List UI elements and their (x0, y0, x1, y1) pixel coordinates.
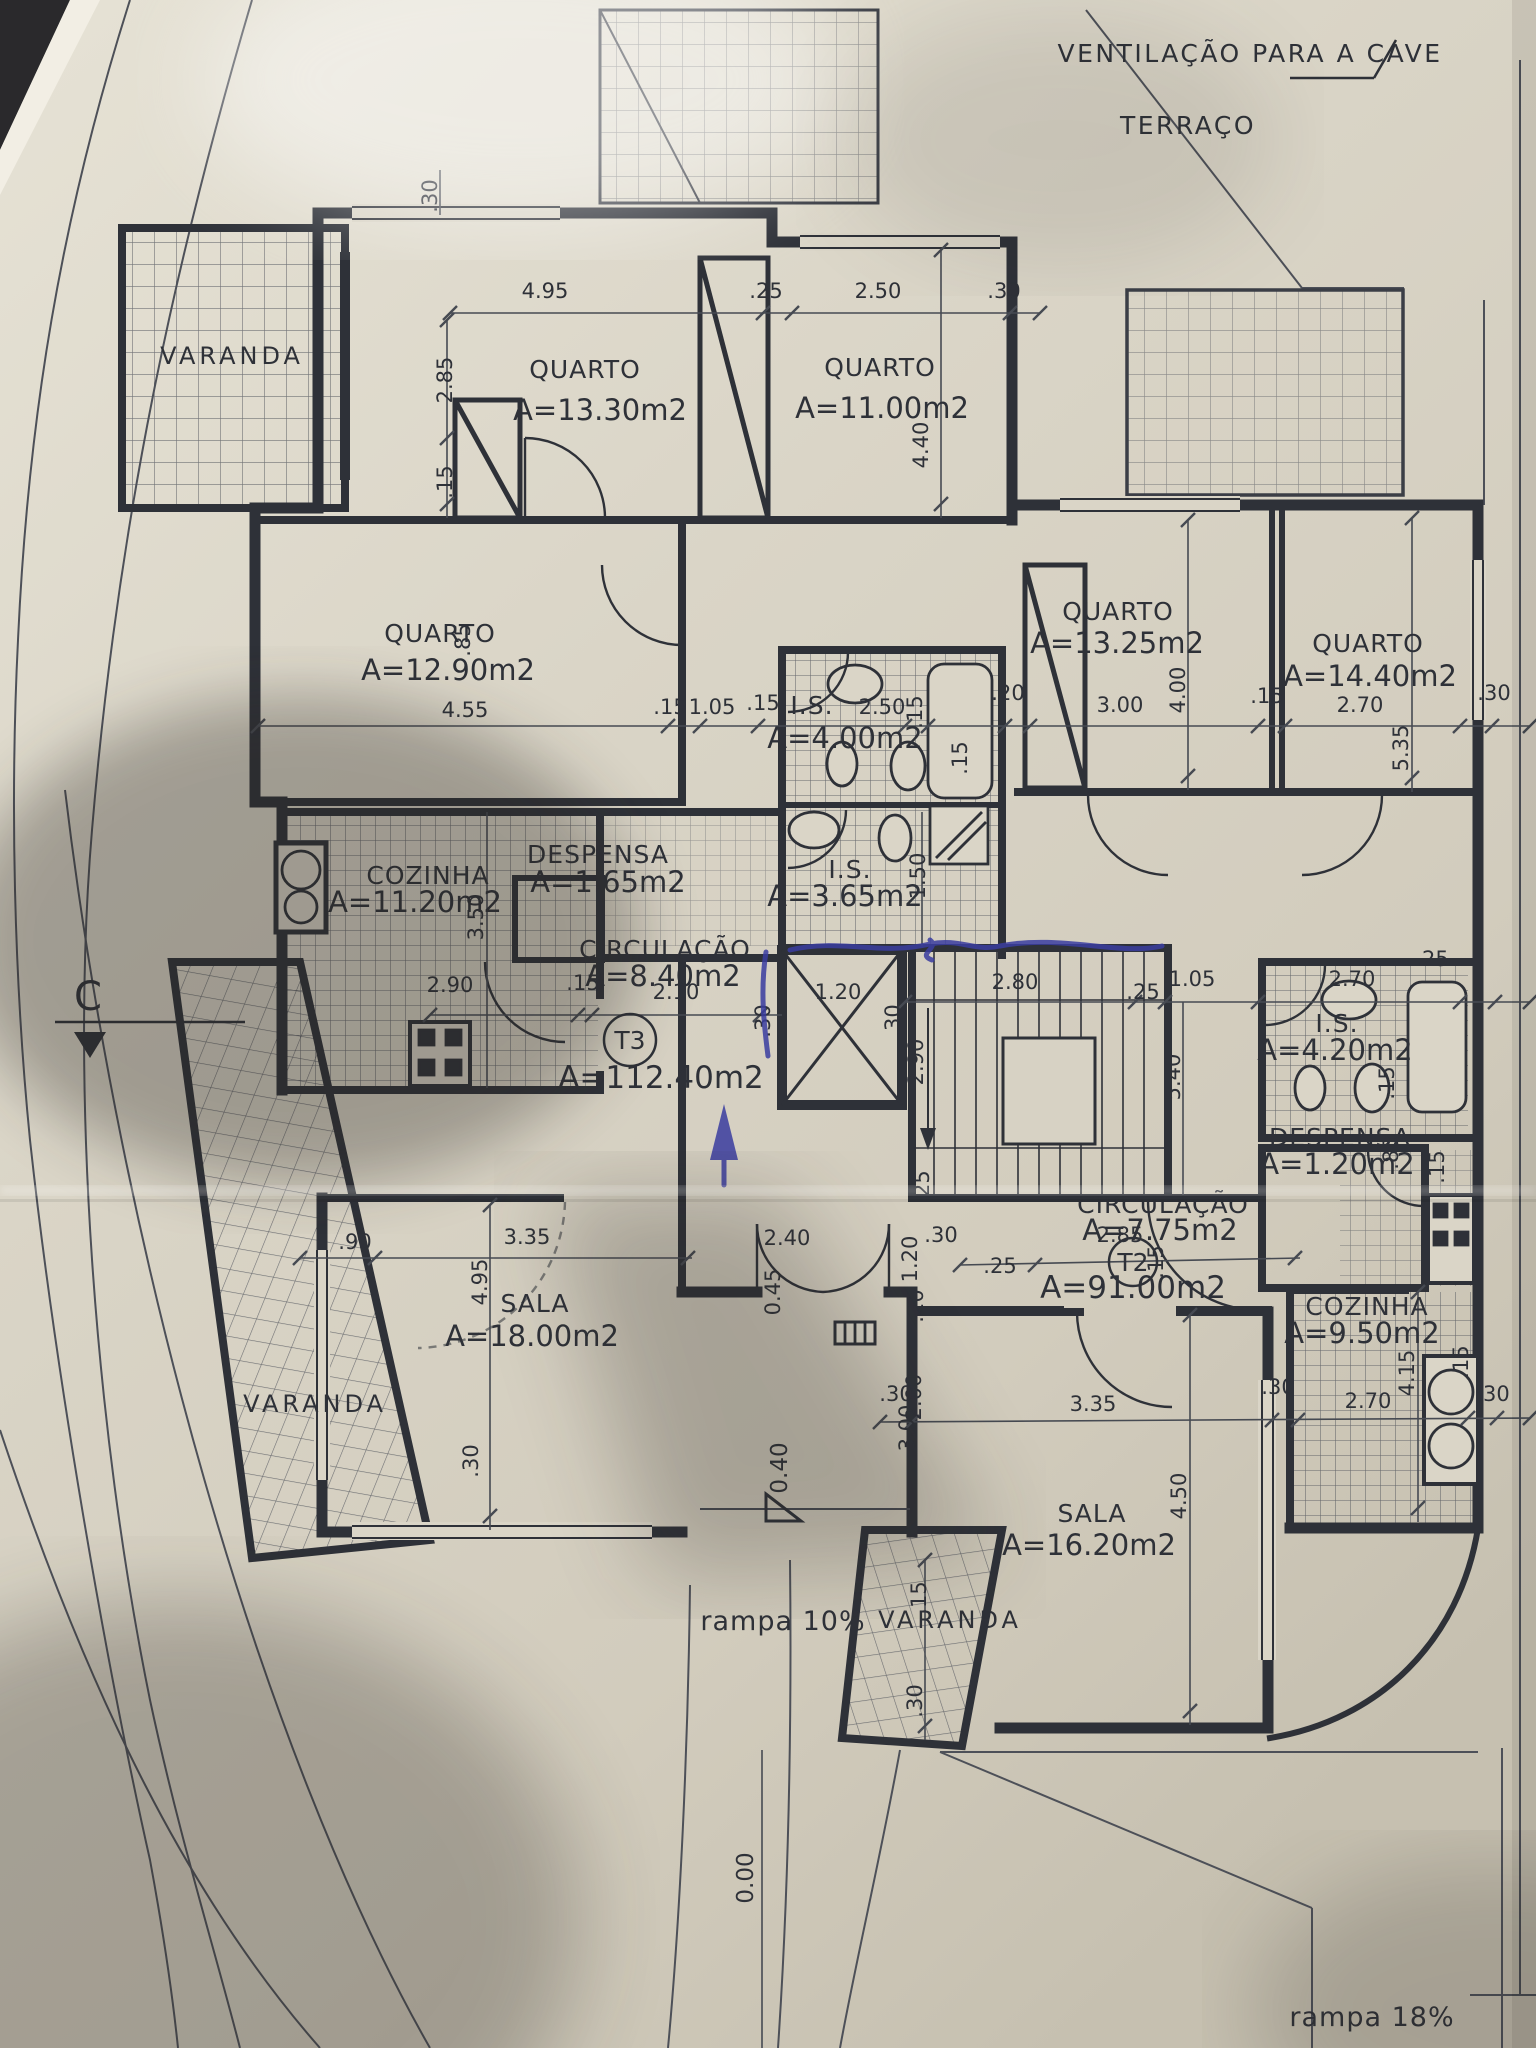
room-area: A=11.00m2 (795, 391, 969, 425)
level-ground-label: 0.00 (733, 1852, 759, 1903)
bidet-icon (1295, 1066, 1325, 1110)
dim-label: 3.35 (1070, 1392, 1117, 1416)
dim-label: .25 (1126, 980, 1159, 1004)
paper-crease-line (0, 1199, 1536, 1202)
room-area: A=14.40m2 (1283, 659, 1457, 693)
room-label: I.S. (790, 691, 833, 720)
room-area: A=3.65m2 (767, 879, 922, 913)
dim-label: .25 (1415, 947, 1448, 971)
room-label: QUARTO (824, 353, 936, 382)
sink-bowl-icon (1429, 1424, 1473, 1468)
dim-label: .30 (1261, 1375, 1294, 1399)
dim-label: .20 (904, 1289, 928, 1322)
dim-label: 1.20 (815, 980, 862, 1004)
dim-label: 4.00 (1166, 667, 1190, 714)
room-area: A=16.20m2 (1002, 1528, 1176, 1562)
room-label: QUARTO (1312, 629, 1424, 658)
dim-label: .90 (338, 1230, 371, 1254)
apartment-area-t2: A=91.00m2 (1040, 1270, 1226, 1306)
room-label-varanda-left: VARANDA (243, 1390, 387, 1418)
dim-label: 2.50 (859, 695, 906, 719)
dim-label: .30 (459, 1444, 483, 1477)
dim-label: 4.95 (522, 279, 569, 303)
dim-label: 1.05 (689, 695, 736, 719)
shadow-top-right (840, 10, 1280, 270)
room-label: SALA (1057, 1499, 1126, 1528)
dim-label: .15 (907, 1581, 931, 1614)
edge-shade (1512, 0, 1536, 2048)
dim-label: .30 (1476, 1382, 1509, 1406)
dim-label: 2.50 (855, 279, 902, 303)
dim-label: 2.70 (1329, 967, 1376, 991)
floorplan-drawing: VENTILAÇÃO PARA A CAVE TERRAÇO C VARANDA… (0, 0, 1536, 2048)
room-area: A=4.00m2 (767, 721, 922, 755)
room-label-varanda-tl: VARANDA (160, 342, 304, 370)
dim-label: .30 (987, 279, 1020, 303)
dim-label: 4.55 (442, 698, 489, 722)
bathtub-icon (928, 664, 992, 798)
room-label: QUARTO (529, 355, 641, 384)
dim-label: .25 (749, 279, 782, 303)
dim-label: 2.80 (992, 970, 1039, 994)
dim-label: .85 (1379, 1136, 1403, 1169)
dim-label: 1.50 (906, 853, 930, 900)
dim-label: .15 (433, 465, 457, 498)
dim-label: 5.35 (1389, 725, 1413, 772)
dim-label: 1.05 (1169, 967, 1216, 991)
room-label: QUARTO (1062, 597, 1174, 626)
dim-label: .25 (983, 1254, 1016, 1278)
dim-label: .15 (1449, 1345, 1473, 1378)
dim-label: 3.00 (1097, 693, 1144, 717)
dim-label: 4.95 (468, 1259, 492, 1306)
dim-label: 2.70 (1345, 1389, 1392, 1413)
room-area: A=12.90m2 (361, 653, 535, 687)
dim-label: .15 (653, 695, 686, 719)
dim-label: .15 (1425, 1150, 1449, 1183)
room-area: A=4.20m2 (1257, 1033, 1412, 1067)
dim-label: 2.85 (433, 357, 457, 404)
dim-label: .30 (1477, 681, 1510, 705)
dim-label: .20 (991, 681, 1024, 705)
dim-label: .15 (1144, 1245, 1168, 1278)
terrace-top-right-hatch (1127, 290, 1403, 495)
dim-label: 2.70 (1337, 693, 1384, 717)
dim-label: 2.85 (1097, 1223, 1144, 1247)
room-area: A=13.25m2 (1030, 626, 1204, 660)
dim-label: .85 (451, 623, 475, 656)
dim-label: .30 (881, 1004, 905, 1037)
dim-label: .15 (1250, 684, 1283, 708)
sink-icon (789, 812, 839, 848)
dim-label: 2.90 (904, 1039, 928, 1086)
dim-label: 4.50 (1167, 1473, 1191, 1520)
dim-label: .15 (948, 741, 972, 774)
dim-label: 5.40 (1161, 1054, 1185, 1101)
dim-label: 3.35 (504, 1225, 551, 1249)
ramp-left-label: rampa 10% (700, 1606, 865, 1637)
dim-label: .15 (1375, 1066, 1399, 1099)
dim-label: 4.15 (1395, 1350, 1419, 1397)
dim-label: 1.20 (898, 1236, 922, 1283)
room-area: A=9.50m2 (1284, 1316, 1439, 1350)
room-area: A=13.30m2 (513, 393, 687, 427)
paper-crease (0, 1186, 1536, 1195)
dim-label: 2.10 (653, 980, 700, 1004)
room-label-varanda-bottom: VARANDA (878, 1606, 1022, 1634)
dim-label: .15 (903, 695, 927, 728)
room-label: SALA (500, 1289, 569, 1318)
dim-label: .15 (746, 691, 779, 715)
dim-label: .30 (903, 1684, 927, 1717)
dim-label: .30 (924, 1223, 957, 1247)
dim-label: 4.40 (909, 422, 933, 469)
stair-landing (1003, 1038, 1095, 1144)
floorplan-photo: VENTILAÇÃO PARA A CAVE TERRAÇO C VARANDA… (0, 0, 1536, 2048)
room-label: QUARTO (384, 619, 496, 648)
apartment-tag-t3: T3 (613, 1026, 645, 1055)
